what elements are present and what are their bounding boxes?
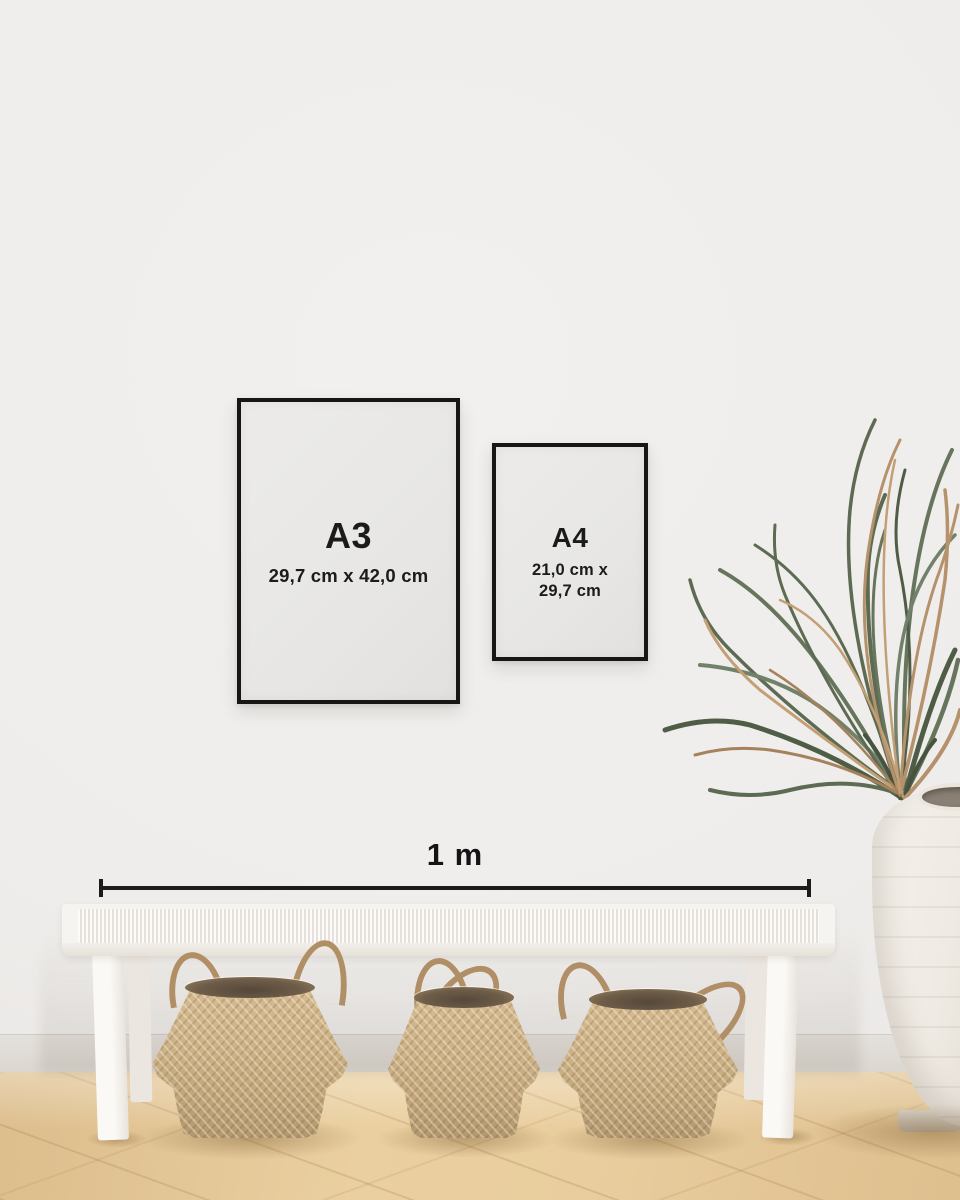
room-scene: A3 29,7 cm x 42,0 cm A4 21,0 cm x 29,7 c… xyxy=(0,0,960,1200)
basket-2 xyxy=(388,994,540,1138)
basket-2-rim xyxy=(414,987,514,1008)
basket-1 xyxy=(152,984,348,1138)
frame-a3-label: A3 xyxy=(325,515,372,557)
dried-palm-plant xyxy=(600,320,960,820)
frame-a3-text: A3 29,7 cm x 42,0 cm xyxy=(269,515,429,587)
basket-1-rim xyxy=(185,977,314,998)
basket-3 xyxy=(558,996,738,1138)
basket-3-rim xyxy=(589,989,708,1010)
frame-a4-text: A4 21,0 cm x 29,7 cm xyxy=(532,522,608,601)
frame-a3-paper: A3 29,7 cm x 42,0 cm xyxy=(241,402,456,700)
basket-2-body xyxy=(388,994,540,1138)
bench-woven-seat xyxy=(78,909,819,943)
bench-leg-right-front xyxy=(762,950,799,1139)
frame-a4-size-line-2: 29,7 cm xyxy=(539,581,601,602)
frame-a3: A3 29,7 cm x 42,0 cm xyxy=(237,398,460,704)
scale-tick-right xyxy=(807,879,811,897)
bench-leg-left-rear xyxy=(128,950,153,1102)
scale-bar-label: 1 m xyxy=(100,837,810,873)
bench-leg-left-front xyxy=(92,950,129,1141)
frame-a4-label: A4 xyxy=(552,522,589,554)
frame-a3-size: 29,7 cm x 42,0 cm xyxy=(269,564,429,587)
bench-top xyxy=(62,904,835,956)
bench-front-rail xyxy=(62,943,835,956)
basket-1-body xyxy=(152,984,348,1138)
scale-bar: 1 m xyxy=(100,886,810,890)
scale-tick-left xyxy=(99,879,103,897)
frame-a4-size-line-1: 21,0 cm x xyxy=(532,560,608,581)
